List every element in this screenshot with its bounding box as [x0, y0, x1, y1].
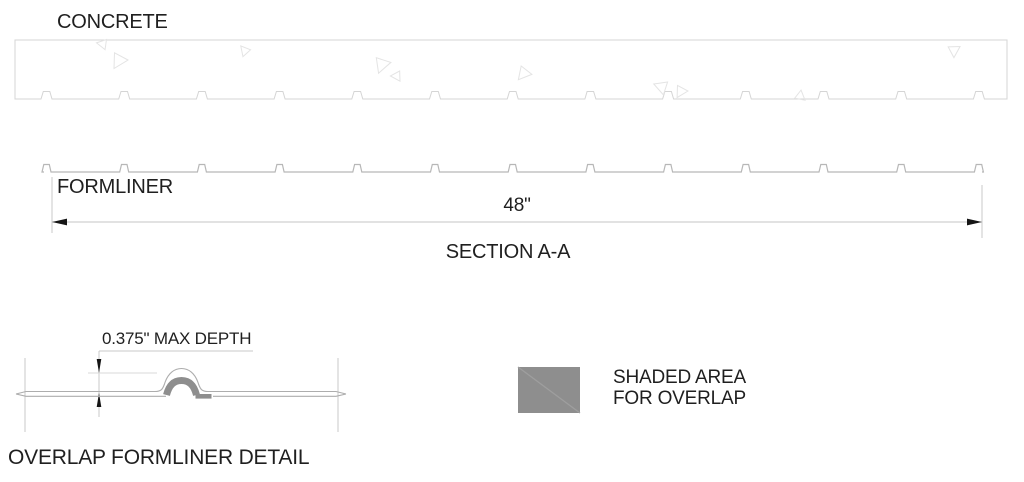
drawing-canvas: CONCRETE FORMLINER 48" SECTION A-A 0.375… — [0, 0, 1024, 482]
section-title: SECTION A-A — [446, 241, 571, 263]
arrowhead-right-icon — [967, 219, 982, 226]
concrete-label: CONCRETE — [57, 11, 168, 33]
concrete-outline — [15, 40, 1007, 99]
overlap-detail — [16, 351, 346, 432]
detail-title: OVERLAP FORMLINER DETAIL — [8, 446, 309, 469]
concrete-section — [15, 39, 1007, 100]
overlap-shaded-arc — [167, 381, 197, 396]
sheet-top-left — [16, 392, 155, 395]
legend — [518, 367, 580, 413]
arrowhead-left-icon — [52, 219, 67, 226]
formliner-profile — [42, 165, 983, 173]
sheet-top-right — [208, 392, 346, 395]
depth-arrow-up-icon — [97, 393, 102, 407]
formliner-label: FORMLINER — [57, 176, 173, 198]
depth-arrow-down-icon — [97, 359, 102, 373]
legend-text-line1: SHADED AREA — [613, 368, 746, 389]
max-depth-label: 0.375" MAX DEPTH — [102, 330, 251, 349]
sheet-bottom-left — [16, 394, 166, 396]
sheet-bottom-right — [213, 394, 346, 396]
dimension-48-label: 48" — [503, 196, 530, 217]
overlap-shaded-tail — [196, 394, 212, 399]
legend-text-line2: FOR OVERLAP — [613, 389, 746, 410]
